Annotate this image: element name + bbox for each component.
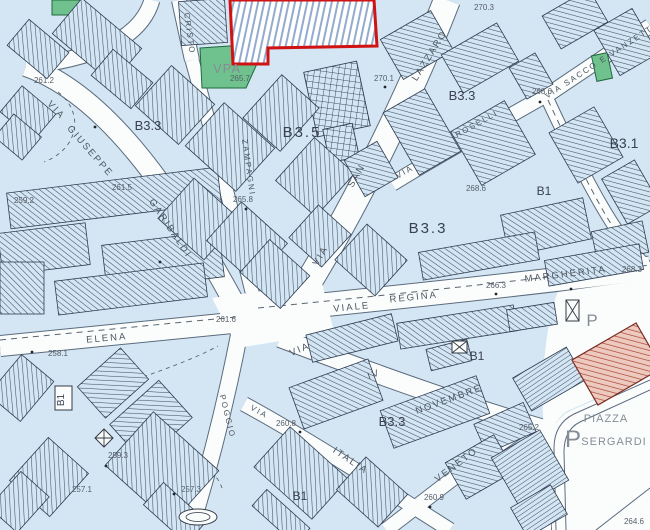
elevation-label: 261.6 bbox=[216, 315, 237, 324]
elevation-label: 266.3 bbox=[486, 281, 507, 290]
zone-label: B3.3 bbox=[449, 88, 476, 103]
elevation-label: 265.2 bbox=[519, 423, 540, 432]
elevation-label: 259.3 bbox=[108, 451, 129, 460]
elevation-label: 257.3 bbox=[181, 485, 202, 494]
elevation-label: 268.3 bbox=[622, 265, 643, 274]
zone-label: B3.5 bbox=[283, 124, 322, 141]
monument-oval-icon bbox=[179, 509, 217, 525]
area-label: SERGARDI bbox=[581, 436, 646, 448]
zone-label: B1 bbox=[537, 184, 552, 198]
elevation-label: 270.3 bbox=[474, 3, 495, 12]
elevation-label: 261.2 bbox=[34, 76, 55, 85]
zone-label: B3.1 bbox=[610, 135, 639, 151]
elevation-label: 265.8 bbox=[233, 195, 254, 204]
elevation-label: 260.8 bbox=[276, 419, 297, 428]
map-canvas[interactable]: B3.3B3.5B3.3B3.3B3.1B1B1B3.3B1B1 VIAGIUS… bbox=[0, 0, 650, 530]
zoning-map[interactable]: B3.3B3.5B3.3B3.3B3.1B1B1B3.3B1B1 VIAGIUS… bbox=[0, 0, 650, 530]
zone-label: B1 bbox=[293, 489, 308, 503]
elevation-label: 264.6 bbox=[624, 517, 645, 526]
elevation-label: 259.2 bbox=[14, 196, 35, 205]
zone-label: B1 bbox=[470, 349, 485, 363]
area-label: P bbox=[586, 311, 597, 330]
zone-label: B3.3 bbox=[135, 118, 162, 133]
zone-label: B1 bbox=[56, 393, 67, 406]
elevation-label: 261.5 bbox=[112, 183, 133, 192]
elevation-label: 268.6 bbox=[466, 184, 487, 193]
crossed-box-icon bbox=[452, 341, 467, 353]
elevation-label: 258.1 bbox=[48, 349, 69, 358]
area-label: P bbox=[565, 426, 581, 453]
elevation-label: 260.9 bbox=[424, 493, 445, 502]
area-label: PIAZZA bbox=[584, 413, 629, 425]
elevation-label: 270.1 bbox=[374, 74, 395, 83]
zone-label: B3.3 bbox=[409, 220, 448, 237]
elevation-label: 268.6 bbox=[532, 87, 553, 96]
zone-label: B3.3 bbox=[379, 414, 406, 429]
area-label: VPA bbox=[213, 61, 241, 76]
elevation-label: 257.1 bbox=[72, 485, 93, 494]
crossed-box-icon bbox=[566, 300, 579, 321]
